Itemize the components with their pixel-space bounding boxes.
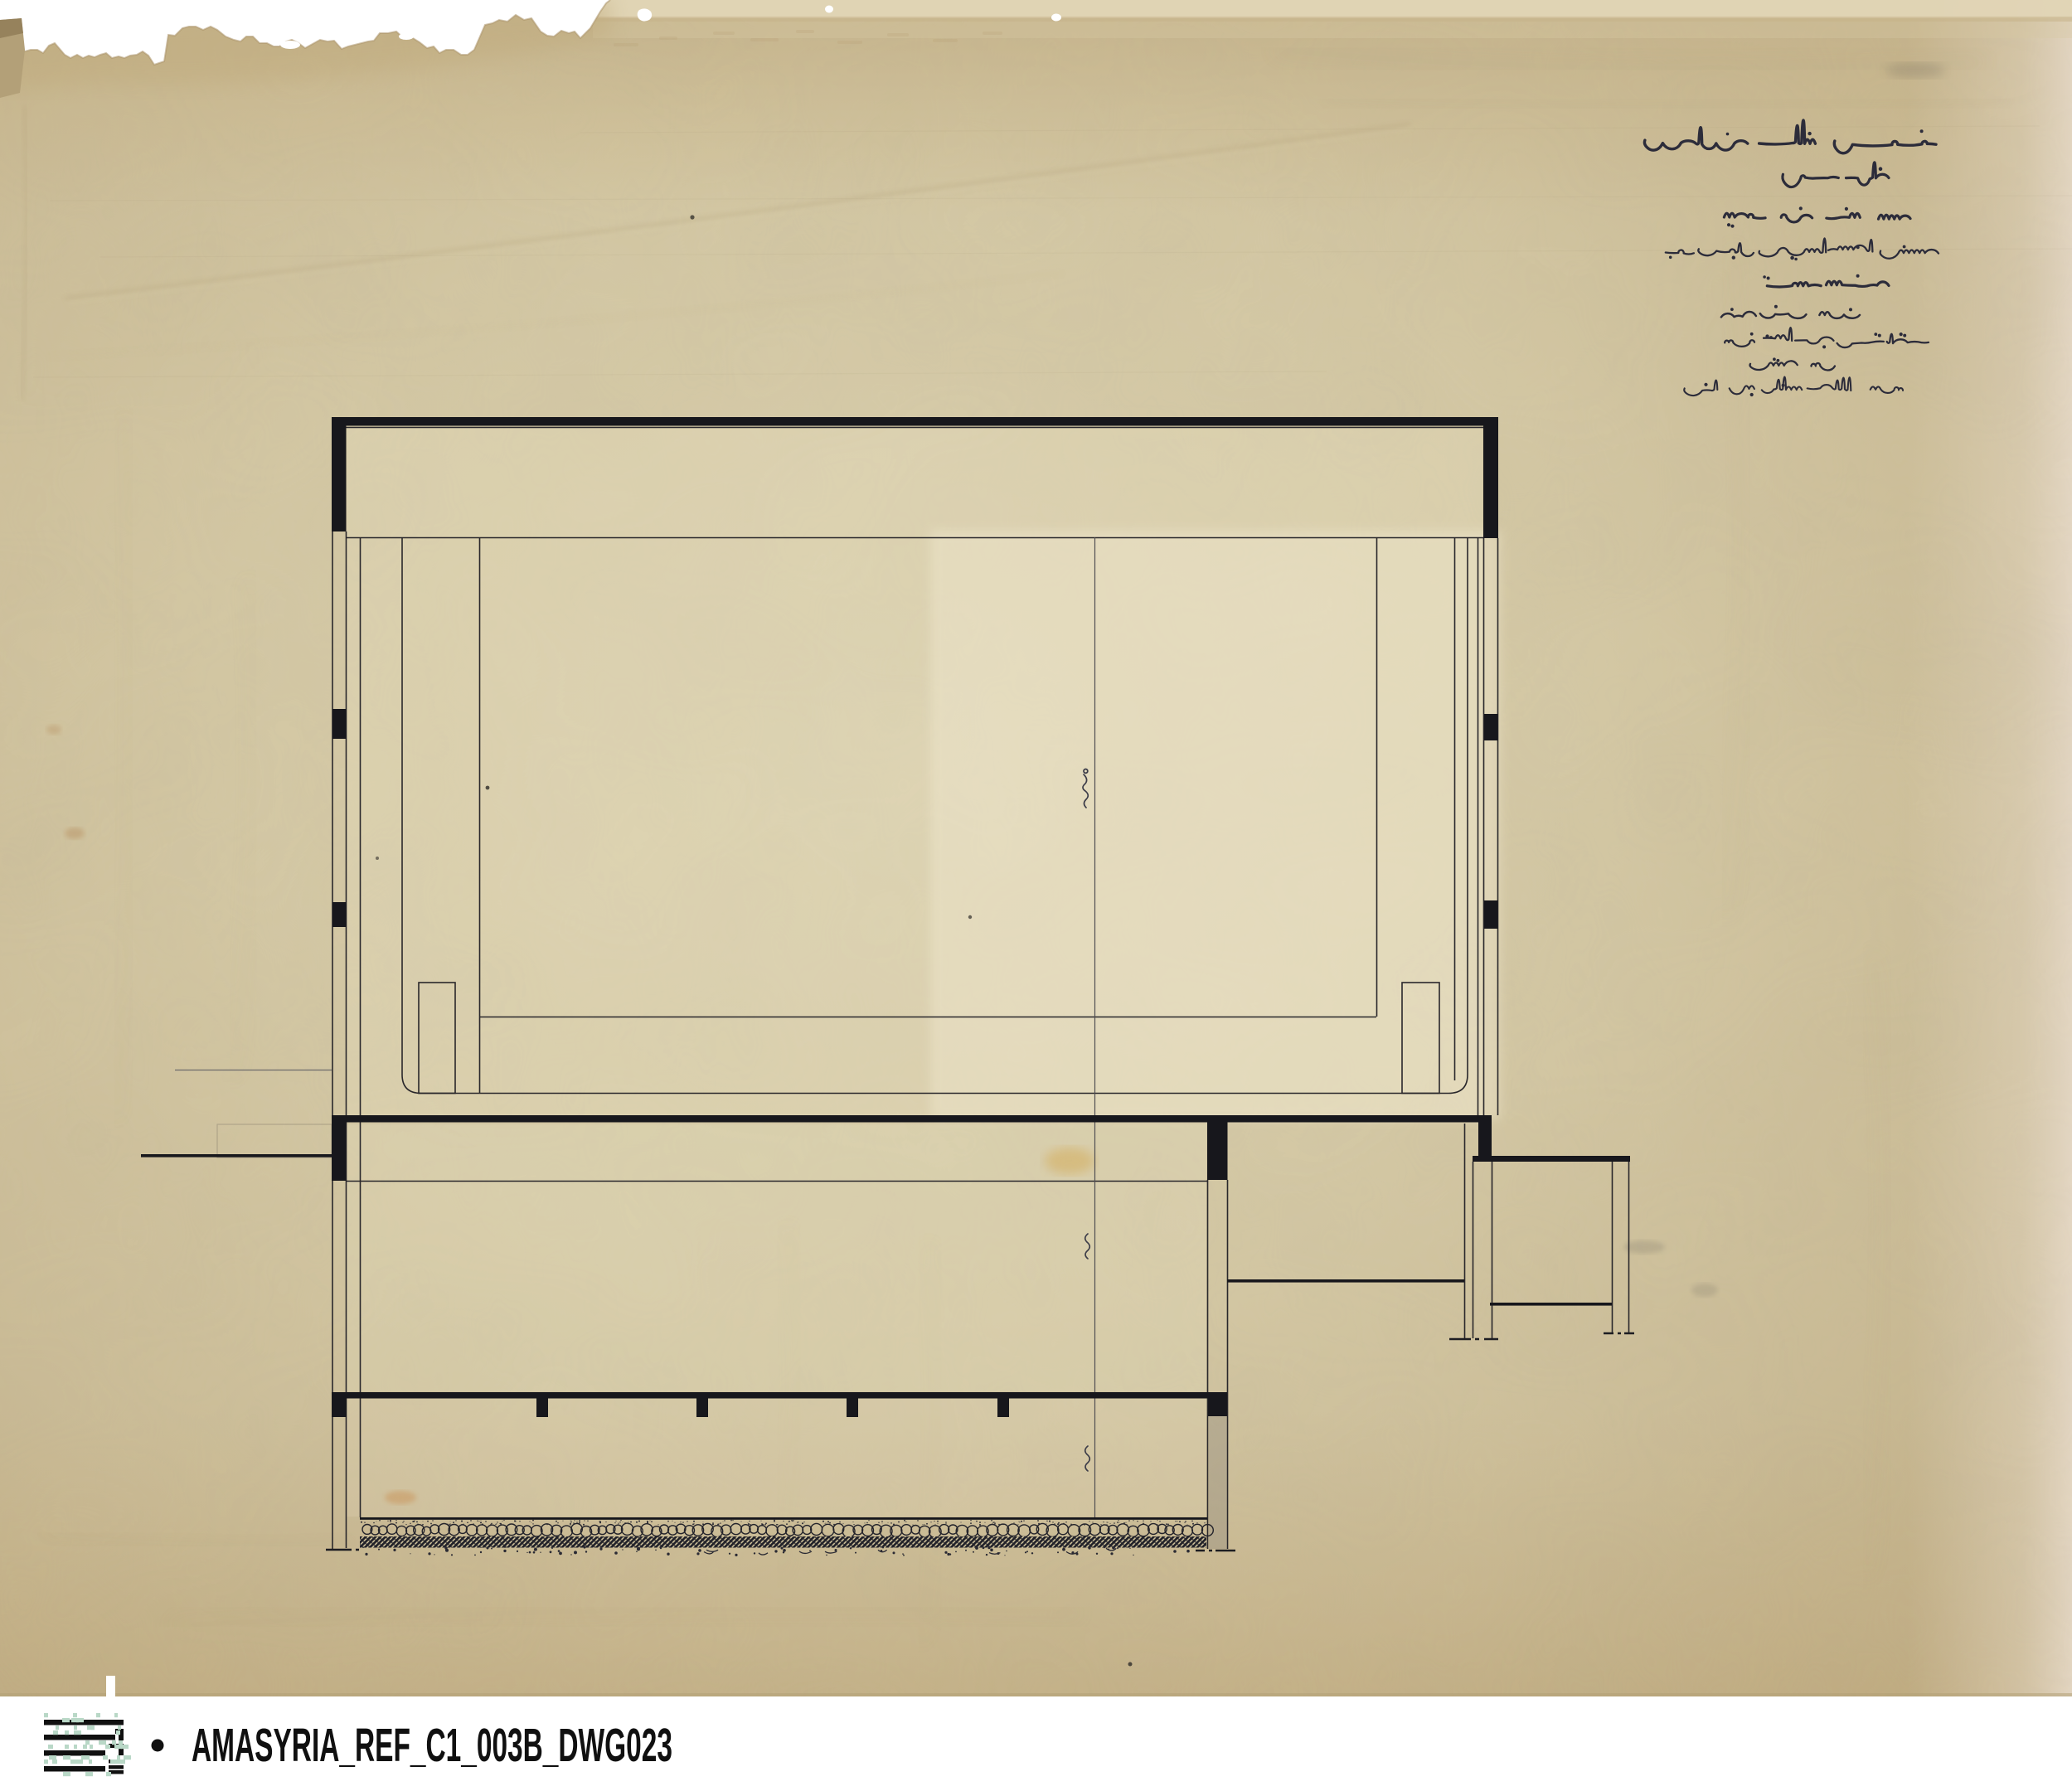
svg-text:AMASYRIA_REF_C1_003B_DWG023: AMASYRIA_REF_C1_003B_DWG023 xyxy=(192,1719,672,1771)
